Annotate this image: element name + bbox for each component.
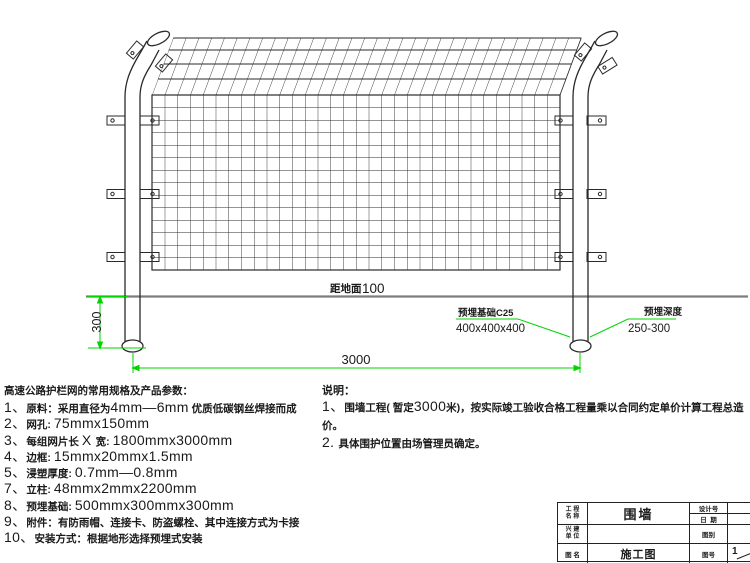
drawing-name-label-cell: 图 名 <box>558 544 588 563</box>
project-name-label-cell: 工 程名 称 <box>558 503 588 525</box>
note-2: 2. 具体围护位置由场管理员确定。 <box>322 435 748 453</box>
builder-value-cell <box>588 525 690 544</box>
drawing-number-label-cell: 图号 <box>690 544 728 563</box>
ground-clearance-value: 100 <box>362 281 385 296</box>
project-name-value-cell: 围墙 <box>588 503 690 525</box>
category-label-cell: 图别 <box>690 525 728 544</box>
annotation-texts: 距地面 100 300 3000 预埋基础C25 400x400x400 预埋深… <box>90 281 683 367</box>
spec-item-frame: 4、边框: 15mmx20mmx1.5mm <box>4 448 334 464</box>
spec-item-post: 7、立柱: 48mmx2mmx2200mm <box>4 480 334 496</box>
drawing-name-value-cell: 施工图 <box>588 544 690 563</box>
project-name: 围墙 <box>623 504 653 523</box>
spec-item-material: 1、原料：采用直径为4mm—6mm 优质低碳钢丝焊接而成 <box>4 399 334 415</box>
dim-3000: 3000 <box>342 352 371 367</box>
spec-item-foundation: 8、预埋基础: 500mmx300mmx300mm <box>4 497 334 513</box>
drawing-number: 1 <box>732 546 738 557</box>
drawing-number-value-cell: 1 <box>728 544 750 563</box>
spec-title: 高速公路护栏网的常用规格及产品参数： <box>4 383 334 399</box>
embed-depth-value: 250-300 <box>628 323 670 335</box>
drawing-name: 施工图 <box>621 546 657 562</box>
date-label-cell: 日 期 <box>690 514 728 525</box>
embed-depth-label: 预埋深度 <box>644 306 683 318</box>
spec-item-installation: 10、安装方式：根据地形选择预埋式安装 <box>4 529 334 545</box>
left-post-base <box>122 340 143 352</box>
right-post-top-cap <box>593 28 619 48</box>
spec-item-mesh-opening: 2、网孔: 75mmx150mm <box>4 415 334 431</box>
spec-list: 高速公路护栏网的常用规格及产品参数： 1、原料：采用直径为4mm—6mm 优质低… <box>4 383 334 546</box>
left-post-top-cap <box>145 28 171 48</box>
foundation-size: 400x400x400 <box>456 323 525 335</box>
spec-item-panel-size: 3、每组网片长 X 宽: 1800mmx3000mm <box>4 432 334 448</box>
right-post <box>570 28 620 352</box>
wire-mesh-panel <box>152 95 560 270</box>
ground-clearance-label: 距地面 <box>330 282 362 295</box>
note-1: 1、围墙工程( 暂定3000米)，按实际竣工验收合格工程量乘以合同约定单价计算工… <box>322 399 748 434</box>
category-value-cell <box>728 525 750 544</box>
spec-item-accessories: 9、附件：有防雨帽、连接卡、防盗螺栓、其中连接方式为卡接 <box>4 513 334 529</box>
drawing-number-slash <box>737 550 750 560</box>
design-no-value-cell <box>728 503 750 514</box>
dim-300: 300 <box>90 312 104 333</box>
design-no-label-cell: 设计号 <box>690 503 728 514</box>
date-value-cell <box>728 514 750 525</box>
title-block: 工 程名 称 围墙 设计号 日 期 兴 建单 位 图别 图 名 施工图 图号 1 <box>557 502 750 562</box>
fence-elevation-drawing: 距地面 100 300 3000 预埋基础C25 400x400x400 预埋深… <box>0 0 750 380</box>
spec-item-coating: 5、浸塑厚度: 0.7mm—0.8mm <box>4 464 334 480</box>
notes-heading: 说明： <box>322 383 748 399</box>
right-post-base <box>570 340 591 352</box>
foundation-label: 预埋基础C25 <box>458 307 514 319</box>
notes-block: 说明： 1、围墙工程( 暂定3000米)，按实际竣工验收合格工程量乘以合同约定单… <box>322 383 748 454</box>
mesh-bent-top <box>152 38 581 95</box>
builder-label-cell: 兴 建单 位 <box>558 525 588 544</box>
